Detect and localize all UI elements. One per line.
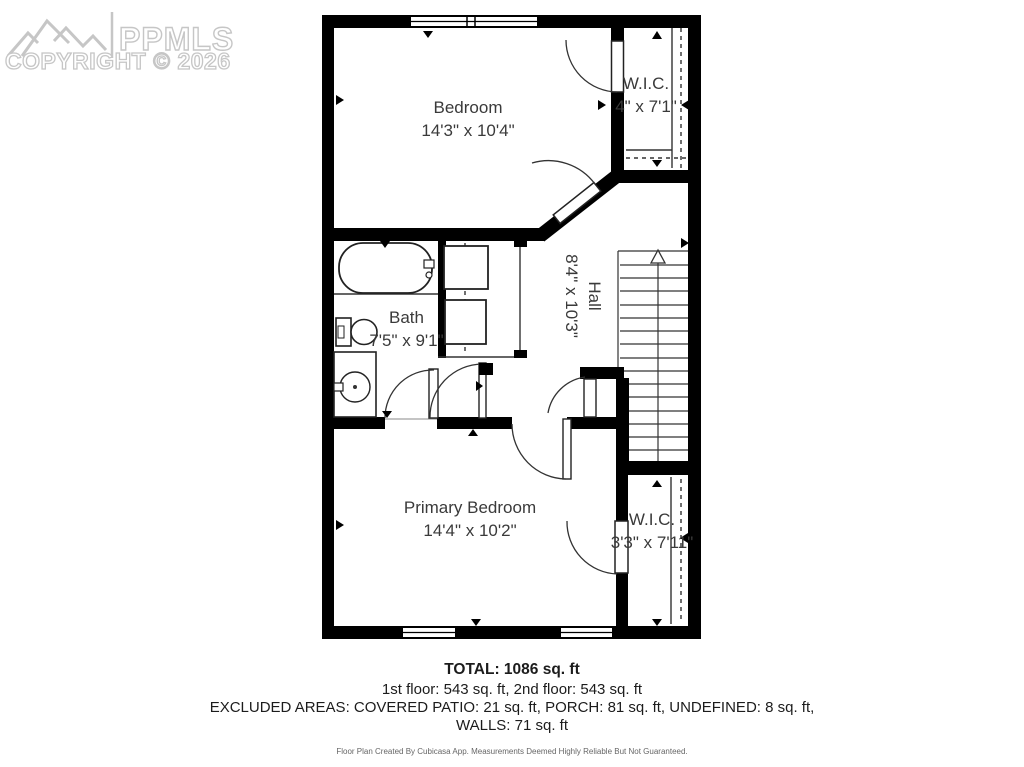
disclaimer: Floor Plan Created By Cubicasa App. Meas… — [0, 747, 1024, 756]
room-label-bath: Bath 7'5" x 9'1" — [334, 306, 479, 353]
washer — [444, 246, 488, 289]
window-bottom-left — [402, 627, 456, 638]
door-hall — [548, 377, 596, 417]
bathtub — [339, 243, 434, 293]
excluded-areas: EXCLUDED AREAS: COVERED PATIO: 21 sq. ft… — [0, 699, 1024, 716]
walls-area: WALLS: 71 sq. ft — [0, 717, 1024, 734]
total-area: TOTAL: 1086 sq. ft — [0, 661, 1024, 679]
wall-cap — [514, 234, 527, 247]
floor-plan-page: PPMLS COPYRIGHT © 2026 — [0, 0, 1024, 767]
door-primary-bedroom — [512, 419, 571, 479]
door-bedroom-entry — [532, 161, 601, 224]
room-dims: 4" x 7'1" — [598, 95, 694, 118]
area-summary: TOTAL: 1086 sq. ft 1st floor: 543 sq. ft… — [0, 661, 1024, 756]
floor-areas: 1st floor: 543 sq. ft, 2nd floor: 543 sq… — [0, 681, 1024, 698]
room-label-hall: Hall 8'4" x 10'3" — [562, 246, 606, 346]
door-bath-right — [430, 363, 493, 418]
window-top — [410, 16, 538, 27]
room-dims: 3'3" x 7'11" — [602, 531, 702, 554]
room-name: Bedroom — [368, 96, 568, 119]
room-label-wic-bottom: W.I.C. 3'3" x 7'11" — [602, 508, 702, 555]
room-name: W.I.C. — [602, 508, 702, 531]
room-name: W.I.C. — [598, 72, 694, 95]
room-dims: 8'4" x 10'3" — [559, 246, 582, 346]
staircase — [618, 251, 697, 461]
room-name: Bath — [334, 306, 479, 329]
stairs-direction-arrow — [651, 250, 665, 263]
room-dims: 14'3" x 10'4" — [368, 119, 568, 142]
room-dims: 14'4" x 10'2" — [345, 519, 595, 542]
room-dims: 7'5" x 9'1" — [334, 329, 479, 352]
room-label-primary-bedroom: Primary Bedroom 14'4" x 10'2" — [345, 496, 595, 543]
sink-vanity — [334, 352, 376, 417]
room-name: Hall — [583, 246, 606, 346]
wall-cap — [514, 350, 527, 358]
room-name: Primary Bedroom — [345, 496, 595, 519]
room-label-wic-top: W.I.C. 4" x 7'1" — [598, 72, 694, 119]
window-bottom-right — [560, 627, 613, 638]
room-label-bedroom: Bedroom 14'3" x 10'4" — [368, 96, 568, 143]
